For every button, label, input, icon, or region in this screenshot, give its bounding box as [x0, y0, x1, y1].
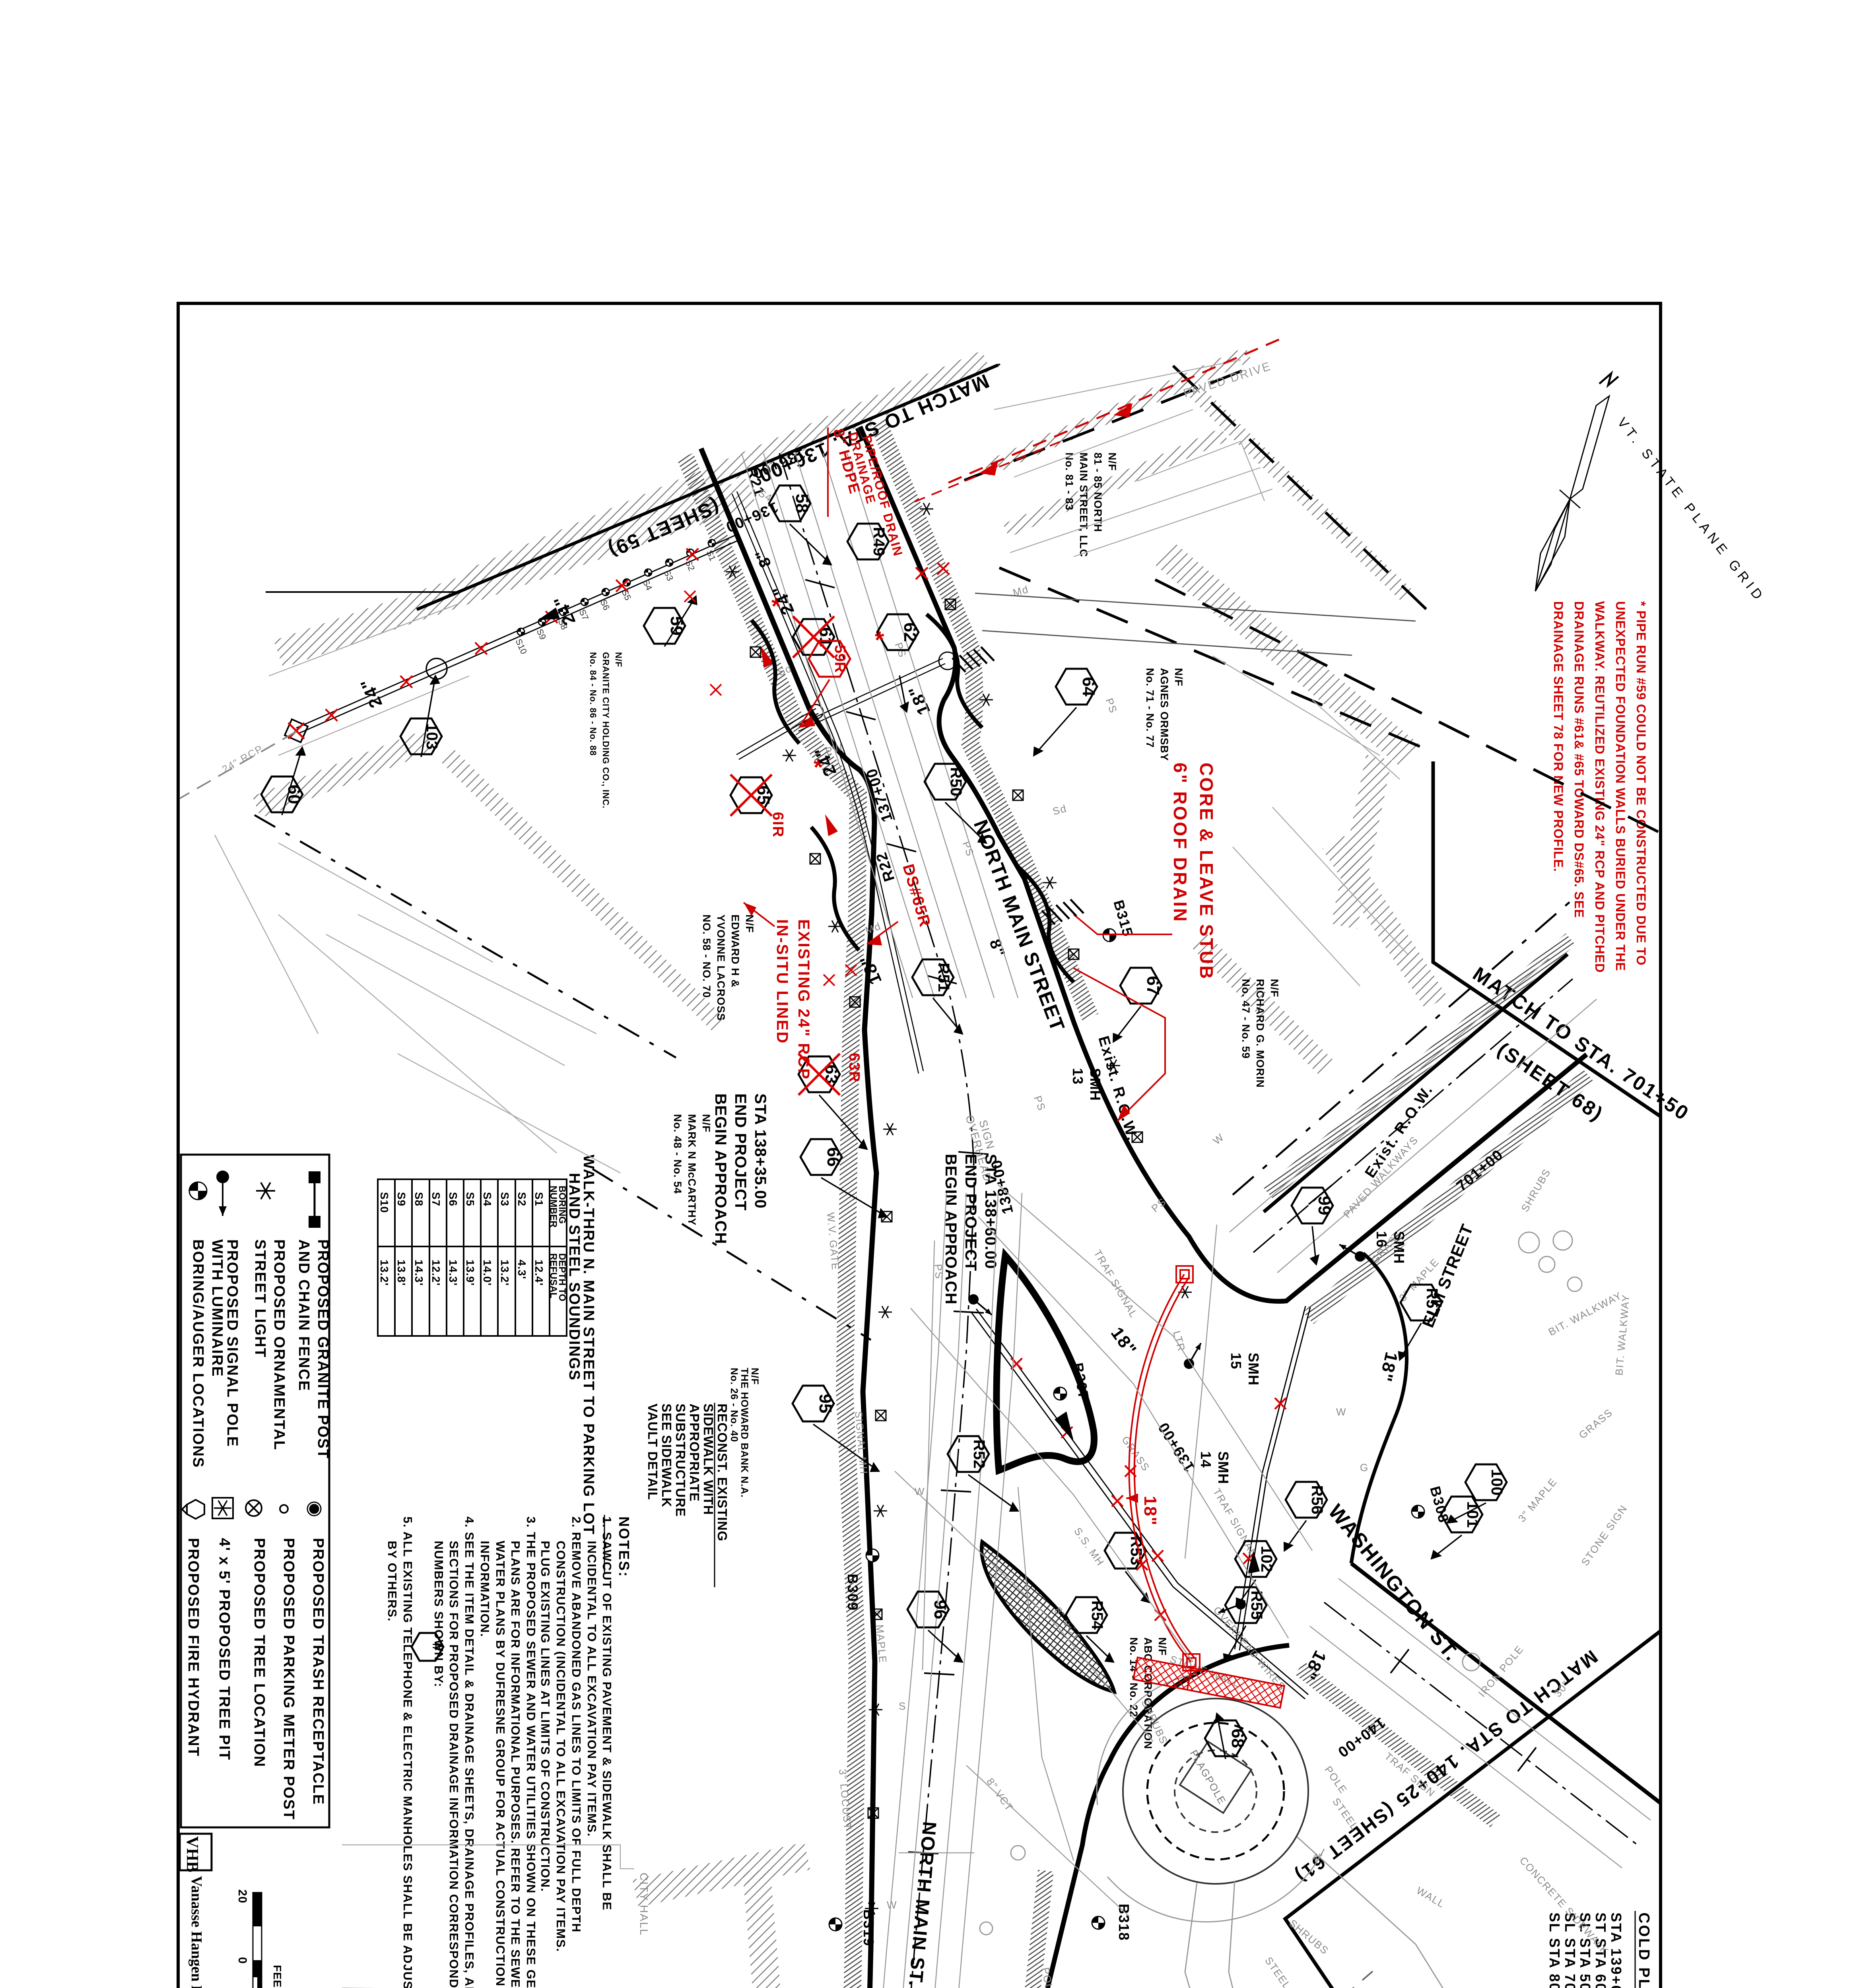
svg-text:EDWARD H &: EDWARD H &	[729, 914, 741, 988]
svg-text:APPROPRIATE: APPROPRIATE	[687, 1404, 702, 1502]
svg-text:SMH: SMH	[1087, 1068, 1103, 1101]
svg-text:59: 59	[667, 616, 686, 636]
svg-text:5. ALL EXISTING TELEPHONE & E: 5. ALL EXISTING TELEPHONE & ELECTRIC MAN…	[401, 1516, 415, 1988]
svg-text:HAND STEEL SOUNDINGS: HAND STEEL SOUNDINGS	[566, 1173, 583, 1381]
svg-text:N/F: N/F	[1173, 668, 1185, 687]
svg-text:W: W	[1336, 1406, 1347, 1418]
svg-text:RECONST. EXISTING: RECONST. EXISTING	[715, 1404, 730, 1541]
svg-text:STA 138+35.00: STA 138+35.00	[752, 1093, 769, 1209]
svg-text:PROPOSED PARKING METER POST: PROPOSED PARKING METER POST	[280, 1538, 297, 1820]
svg-text:INCIDENTAL TO ALL EXCAVATION P: INCIDENTAL TO ALL EXCAVATION PAY ITEMS.	[585, 1541, 599, 1837]
svg-text:THE HOWARD BANK N.A.: THE HOWARD BANK N.A.	[739, 1368, 750, 1498]
svg-text:15: 15	[1228, 1353, 1244, 1369]
svg-text:95: 95	[816, 1394, 835, 1413]
svg-text:NUMBER: NUMBER	[548, 1186, 559, 1227]
svg-text:DRAINAGE SHEET 78 FOR NEW PROF: DRAINAGE SHEET 78 FOR NEW PROFILE.	[1551, 601, 1566, 872]
svg-text:YVONNE LACROSS: YVONNE LACROSS	[715, 914, 727, 1021]
svg-text:NOTES:: NOTES:	[616, 1516, 632, 1578]
svg-text:S3: S3	[499, 1192, 511, 1206]
svg-text:64: 64	[1079, 677, 1098, 697]
svg-text:MAIN STREET, LLC: MAIN STREET, LLC	[1078, 452, 1090, 557]
svg-text:13.9': 13.9'	[464, 1260, 476, 1286]
svg-text:102: 102	[1258, 1546, 1275, 1573]
svg-text:16: 16	[1373, 1231, 1390, 1248]
svg-text:G: G	[1360, 1462, 1369, 1474]
svg-text:2. REMOVE ABANDONED GAS LINES: 2. REMOVE ABANDONED GAS LINES TO LIMITS …	[569, 1516, 583, 1933]
svg-text:R54: R54	[1088, 1600, 1106, 1630]
svg-text:0: 0	[236, 1957, 249, 1964]
svg-text:60: 60	[284, 785, 304, 804]
svg-text:CITY HALL: CITY HALL	[638, 1873, 650, 1936]
svg-text:N/F: N/F	[1156, 1637, 1168, 1656]
svg-text:96: 96	[930, 1600, 950, 1619]
svg-text:PROPOSED GRANITE POST: PROPOSED GRANITE POST	[315, 1239, 331, 1459]
svg-text:S8: S8	[413, 1192, 425, 1206]
svg-text:WALKWAY. REUTILIZED EXISTING 2: WALKWAY. REUTILIZED EXISTING 24" RCP AND…	[1593, 601, 1607, 973]
svg-text:S7: S7	[430, 1192, 442, 1206]
svg-text:6" ROOF DRAIN: 6" ROOF DRAIN	[1170, 763, 1191, 923]
svg-text:MARK N McCARTHY: MARK N McCARTHY	[686, 1114, 698, 1226]
svg-text:PROPOSED FIRE HYDRANT: PROPOSED FIRE HYDRANT	[185, 1538, 202, 1757]
svg-text:CONSTRUCTION (INCIDENTAL TO AL: CONSTRUCTION (INCIDENTAL TO ALL EXCAVATI…	[554, 1541, 568, 1952]
svg-text:IN-SITU LINED: IN-SITU LINED	[773, 919, 791, 1044]
svg-text:#: #	[429, 1643, 446, 1651]
svg-text:BY OTHERS.: BY OTHERS.	[385, 1541, 399, 1622]
svg-text:PROPOSED ORNAMENTAL: PROPOSED ORNAMENTAL	[271, 1239, 288, 1450]
svg-text:No. 84 - No. 86 - No. 88: No. 84 - No. 86 - No. 88	[588, 652, 598, 756]
svg-text:STREET LIGHT: STREET LIGHT	[252, 1239, 268, 1358]
svg-text:B318: B318	[1116, 1904, 1132, 1941]
svg-text:R57: R57	[1423, 1288, 1441, 1317]
svg-text:14: 14	[1198, 1451, 1214, 1468]
svg-text:COLD PLANING, BITUMINOUS PAVEM: COLD PLANING, BITUMINOUS PAVEMENT	[1636, 1912, 1652, 1988]
svg-text:WATER PLANS BY DUFRESNE GROUP: WATER PLANS BY DUFRESNE GROUP FOR ACTUAL…	[493, 1541, 507, 1986]
svg-text:58: 58	[792, 494, 812, 513]
svg-text:SEE SIDEWALK: SEE SIDEWALK	[659, 1404, 674, 1507]
svg-text:REFUSAL: REFUSAL	[548, 1253, 559, 1298]
svg-text:1. SAWCUT OF EXISTING PAVEMEN: 1. SAWCUT OF EXISTING PAVEMENT & SIDEWAL…	[600, 1516, 614, 1910]
svg-text:No. 48 - No. 54: No. 48 - No. 54	[672, 1114, 684, 1194]
svg-text:S2: S2	[516, 1192, 528, 1206]
svg-text:4.3': 4.3'	[516, 1260, 528, 1279]
svg-text:B309: B309	[845, 1574, 861, 1611]
svg-text:* PIPE RUN #59 COULD NOT BE CO: * PIPE RUN #59 COULD NOT BE CONSTRUCTED …	[1634, 601, 1648, 966]
svg-text:N/F: N/F	[700, 1114, 712, 1133]
svg-text:R55: R55	[1248, 1590, 1265, 1619]
svg-text:13.2': 13.2'	[499, 1260, 511, 1286]
svg-text:99: 99	[1315, 1196, 1334, 1215]
svg-text:14.0': 14.0'	[481, 1260, 493, 1286]
svg-text:INFORMATION.: INFORMATION.	[478, 1541, 492, 1637]
svg-text:BEGIN APPROACH: BEGIN APPROACH	[712, 1093, 729, 1244]
svg-text:DRAINAGE RUNS #61& #65 TOWARD: DRAINAGE RUNS #61& #65 TOWARD DS#65. SEE	[1572, 601, 1586, 918]
svg-text:S: S	[899, 1700, 906, 1712]
svg-text:81 - 85 NORTH: 81 - 85 NORTH	[1092, 452, 1104, 532]
svg-text:PROPOSED TREE LOCATION: PROPOSED TREE LOCATION	[251, 1538, 268, 1767]
svg-text:13.8': 13.8'	[395, 1260, 408, 1286]
svg-text:S1: S1	[533, 1192, 545, 1206]
svg-text:FEET: FEET	[271, 1965, 284, 1988]
svg-text:18": 18"	[1140, 1496, 1160, 1526]
svg-text:No. 71 - No. 77: No. 71 - No. 77	[1144, 668, 1156, 748]
svg-text:62: 62	[900, 623, 920, 642]
svg-text:NUMBERS SHOWN BY:: NUMBERS SHOWN BY:	[432, 1541, 446, 1687]
svg-text:SMH: SMH	[1245, 1353, 1262, 1386]
svg-text:N/F: N/F	[1106, 452, 1118, 471]
svg-text:66: 66	[824, 1147, 843, 1167]
svg-text:No. 81 - 83: No. 81 - 83	[1063, 452, 1075, 511]
svg-text:R52: R52	[970, 1439, 988, 1468]
svg-text:PROPOSED TRASH RECEPTACLE: PROPOSED TRASH RECEPTACLE	[310, 1538, 326, 1805]
svg-text:6IR: 6IR	[769, 812, 786, 838]
svg-text:R50: R50	[947, 767, 965, 796]
svg-text:20: 20	[236, 1889, 249, 1903]
svg-text:No. 47 - No. 59: No. 47 - No. 59	[1240, 979, 1252, 1059]
svg-text:R51: R51	[935, 963, 952, 992]
svg-text:R56: R56	[1308, 1485, 1326, 1514]
svg-text:*: *	[875, 627, 884, 653]
svg-text:SIDEWALK WITH: SIDEWALK WITH	[701, 1404, 716, 1515]
svg-text:END PROJECT: END PROJECT	[962, 1154, 979, 1272]
svg-text:GRANITE CITY HOLDING CO., INC.: GRANITE CITY HOLDING CO., INC.	[601, 652, 611, 809]
svg-text:67: 67	[1143, 976, 1163, 996]
svg-text:RICHARD G. MORIN: RICHARD G. MORIN	[1254, 979, 1266, 1088]
svg-text:14.3': 14.3'	[413, 1260, 425, 1286]
svg-text:SMH: SMH	[1215, 1451, 1232, 1484]
svg-text:STA 139+60 - 140+25: STA 139+60 - 140+25	[1608, 1912, 1624, 1988]
svg-text:S9: S9	[395, 1192, 408, 1206]
svg-text:END PROJECT: END PROJECT	[732, 1093, 749, 1211]
svg-text:14.3': 14.3'	[447, 1260, 459, 1286]
svg-text:NO. 58 - NO. 70: NO. 58 - NO. 70	[701, 914, 713, 998]
svg-text:AGNES ORMSBY: AGNES ORMSBY	[1158, 668, 1170, 761]
svg-text:100: 100	[1488, 1469, 1506, 1496]
svg-text:68: 68	[1228, 1729, 1247, 1748]
svg-text:SL STA 800+19 - 800+65: SL STA 800+19 - 800+65	[1546, 1912, 1563, 1988]
svg-text:VHB: VHB	[183, 1836, 201, 1872]
svg-text:3. THE PROPOSED SEWER AND WAT: 3. THE PROPOSED SEWER AND WATER UTILITIE…	[524, 1516, 538, 1988]
svg-text:B319: B319	[861, 1909, 877, 1947]
svg-text:N/F: N/F	[1269, 979, 1280, 998]
svg-text:S4: S4	[481, 1192, 493, 1206]
svg-text:N/F: N/F	[614, 652, 624, 667]
svg-text:101: 101	[1464, 1501, 1481, 1528]
svg-text:PLANS ARE FOR INFORMATIONAL PU: PLANS ARE FOR INFORMATIONAL PURPOSES. RE…	[509, 1541, 523, 1988]
svg-text:PLUG EXISTING LINES AT LIMITS: PLUG EXISTING LINES AT LIMITS OF CONSTRU…	[538, 1541, 552, 1892]
svg-text:12.4': 12.4'	[533, 1260, 545, 1286]
svg-text:13.2': 13.2'	[378, 1260, 390, 1286]
svg-text:WITH LUMINAIRE: WITH LUMINAIRE	[209, 1239, 225, 1377]
svg-text:Vanasse Hangen Brustlin, Inc.: Vanasse Hangen Brustlin, Inc.	[188, 1876, 205, 1988]
svg-text:No. 26 - No. 40: No. 26 - No. 40	[728, 1368, 740, 1442]
svg-text:4' x 5' PROPOSED TREE PIT: 4' x 5' PROPOSED TREE PIT	[216, 1538, 233, 1761]
svg-text:63R: 63R	[846, 1053, 863, 1083]
svg-text:S5: S5	[464, 1192, 476, 1206]
svg-text:VAULT DETAIL: VAULT DETAIL	[645, 1404, 660, 1500]
svg-text:AND CHAIN FENCE: AND CHAIN FENCE	[295, 1239, 312, 1392]
svg-text:W: W	[887, 1899, 897, 1911]
svg-text:PROPOSED SIGNAL POLE: PROPOSED SIGNAL POLE	[224, 1239, 241, 1447]
svg-text:N/F: N/F	[749, 1368, 760, 1385]
svg-text:S10: S10	[378, 1192, 390, 1213]
svg-text:BORING/AUGER LOCATIONS: BORING/AUGER LOCATIONS	[190, 1239, 206, 1468]
svg-text:SUBSTRUCTURE: SUBSTRUCTURE	[673, 1404, 688, 1517]
svg-text:59R: 59R	[831, 645, 848, 673]
svg-text:13: 13	[1070, 1068, 1086, 1085]
svg-text:12.2': 12.2'	[430, 1260, 442, 1286]
svg-text:UNEXPECTED FOUNDATION WALLS BU: UNEXPECTED FOUNDATION WALLS BURIED UNDER…	[1613, 601, 1628, 971]
svg-text:CORE & LEAVE STUB: CORE & LEAVE STUB	[1196, 763, 1217, 980]
svg-text:SECTIONS FOR PROPOSED DRAINAGE: SECTIONS FOR PROPOSED DRAINAGE INFORMATI…	[447, 1541, 461, 1988]
svg-text:S6: S6	[447, 1192, 459, 1206]
svg-text:EXISTING 24" RCP: EXISTING 24" RCP	[795, 919, 812, 1080]
svg-text:4": 4"	[1312, 1851, 1323, 1863]
svg-text:SMH: SMH	[1391, 1231, 1407, 1264]
svg-text:N/F: N/F	[744, 914, 756, 933]
svg-text:4. SEE THE ITEM DETAIL & DRAI: 4. SEE THE ITEM DETAIL & DRAINAGE SHEETS…	[462, 1516, 476, 1988]
